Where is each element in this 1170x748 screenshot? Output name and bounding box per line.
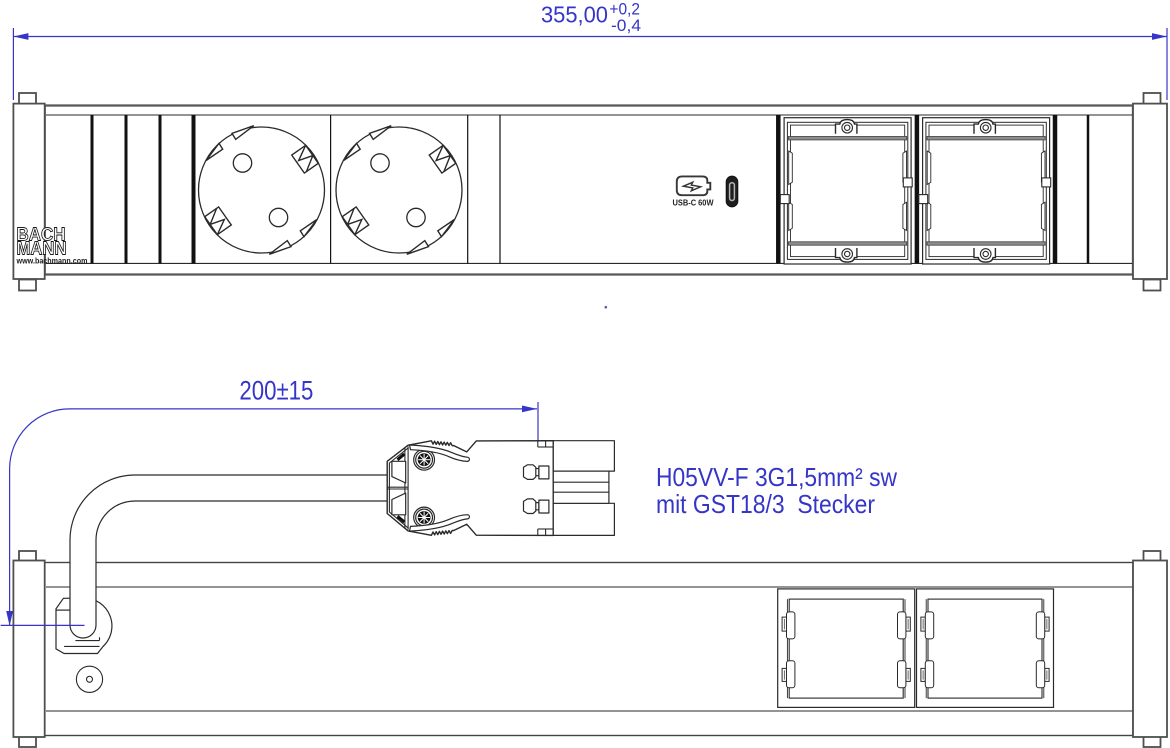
svg-text:355,00: 355,00 bbox=[541, 1, 608, 27]
svg-text:www.bachmann.com: www.bachmann.com bbox=[16, 257, 88, 266]
svg-text:USB-C 60W: USB-C 60W bbox=[673, 199, 714, 208]
svg-text:-0,4: -0,4 bbox=[611, 16, 641, 35]
svg-text:200±15: 200±15 bbox=[239, 376, 313, 406]
svg-text:MANN: MANN bbox=[17, 238, 67, 259]
svg-text:H05VV-F 3G1,5mm² sw: H05VV-F 3G1,5mm² sw bbox=[656, 462, 897, 492]
svg-text:mit GST18/3 Stecker: mit GST18/3 Stecker bbox=[656, 489, 875, 519]
